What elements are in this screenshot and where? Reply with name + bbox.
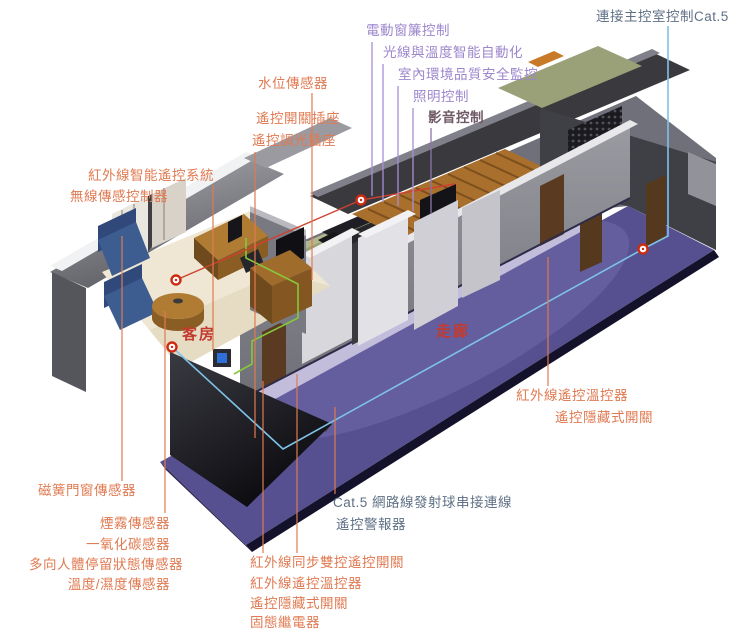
label-ir-remote-thermostat-right: 紅外線遙控溫控器	[516, 389, 628, 404]
marker-ring	[172, 276, 181, 285]
label-guest-room: 客房	[182, 327, 216, 344]
label-ir-remote-thermostat: 紅外線遙控溫控器	[250, 577, 362, 592]
label-temp-humidity-sensor: 溫度/濕度傳感器	[8, 578, 170, 593]
label-smoke-sensor: 煙霧傳感器	[8, 517, 170, 532]
marker-ring	[357, 196, 366, 205]
label-curtain-control: 電動窗簾控制	[366, 24, 450, 39]
label-cat5-chain: Cat.5 網路線發射球串接連線	[333, 496, 512, 511]
smart-home-isometric-diagram: 電動窗簾控制 光線與溫度智能自動化 室內環境品質安全監控 照明控制 影音控制 連…	[0, 0, 740, 638]
label-ir-smart-remote-system: 紅外線智能遙控系統	[88, 169, 214, 184]
label-lighting-control: 照明控制	[413, 90, 469, 105]
label-wireless-sensor-controller: 無線傳感控制器	[70, 190, 168, 205]
marker-ring	[639, 245, 648, 254]
label-corridor: 走廊	[436, 324, 470, 341]
label-ir-sync-dual-switch: 紅外線同步雙控遙控開關	[250, 556, 404, 571]
label-solid-state-relay: 固態繼電器	[250, 616, 320, 631]
label-av-control: 影音控制	[428, 111, 484, 126]
label-remote-alarm: 遙控警報器	[336, 518, 406, 533]
marker-ring	[168, 343, 177, 352]
label-light-temp-automation: 光線與溫度智能自動化	[383, 46, 523, 61]
label-remote-dimmer-socket: 遙控調光插座	[252, 134, 336, 149]
door	[540, 174, 564, 246]
label-remote-switch-socket: 遙控開關插座	[256, 112, 340, 127]
label-remote-hidden-switch-right: 遙控隱藏式開關	[555, 411, 653, 426]
label-remote-hidden-switch: 遙控隱藏式開關	[250, 597, 348, 612]
label-magnetic-door-window-sensor: 磁簧門窗傳感器	[38, 484, 136, 499]
door	[646, 175, 666, 247]
label-indoor-env-monitoring: 室內環境品質安全監控	[398, 68, 538, 83]
label-water-level-sensor: 水位傳感器	[258, 77, 328, 92]
label-co-sensor: 一氧化碳感器	[8, 538, 170, 553]
label-cat5-main-control: 連接主控室控制Cat.5	[596, 10, 729, 25]
label-presence-sensor: 多向人體停留狀態傳感器	[8, 558, 183, 573]
